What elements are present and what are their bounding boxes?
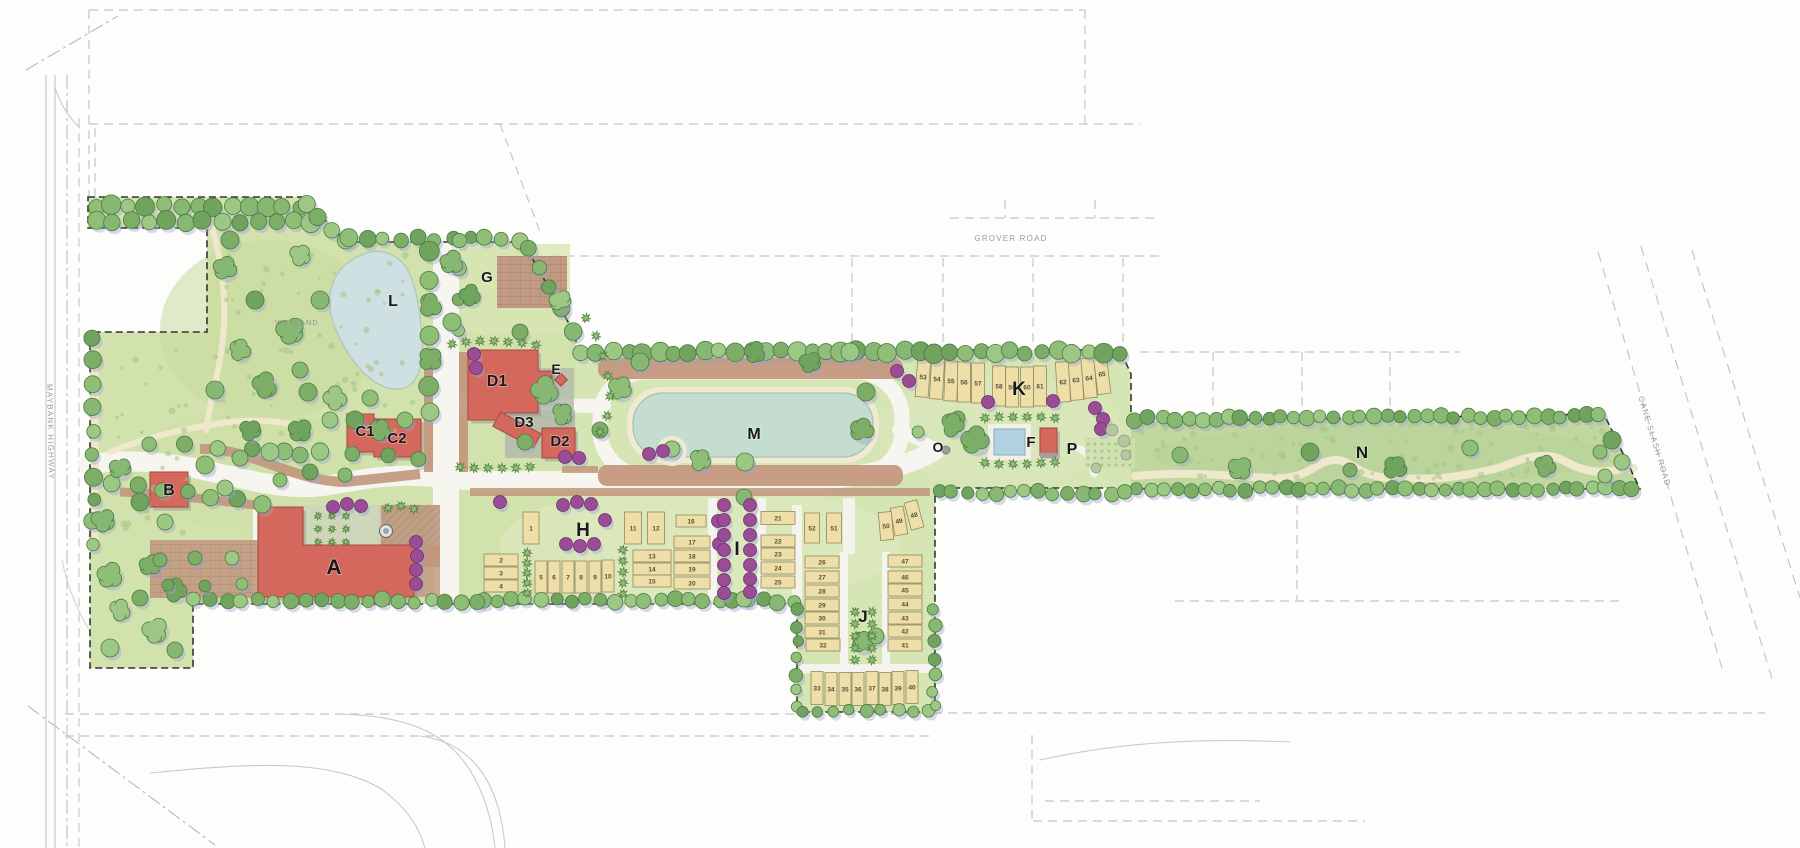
area-label-L: L [388, 293, 398, 310]
lot-6: 6 [548, 561, 560, 593]
lot-number: 32 [819, 642, 827, 649]
lot-number: 5 [539, 574, 543, 581]
lot-number: 11 [630, 525, 637, 532]
lot-34: 34 [825, 673, 837, 706]
wetland-label: WETLAND [275, 318, 319, 327]
area-label-E: E [551, 361, 560, 377]
lot-number: 7 [566, 574, 570, 581]
lot-24: 24 [761, 562, 795, 574]
lot-27: 27 [805, 571, 839, 583]
lot-number: 62 [1059, 379, 1067, 386]
lot-15: 15 [633, 575, 671, 587]
lot-number: 18 [688, 553, 696, 560]
lot-3: 3 [484, 567, 518, 579]
lot-number: 33 [813, 685, 821, 692]
lot-number: 41 [901, 642, 909, 649]
lot-17: 17 [674, 536, 710, 548]
lot-number: 21 [774, 515, 782, 522]
pool [988, 424, 1031, 460]
area-label-J: J [858, 607, 867, 626]
lot-11: 11 [625, 512, 642, 544]
lot-number: 44 [901, 601, 909, 608]
lot-number: 47 [901, 558, 909, 565]
lot-number: 26 [818, 559, 826, 566]
road-label-cane_slash: CANE SLASH ROAD [1636, 395, 1672, 488]
lot-57: 57 [972, 363, 985, 403]
area-label-I: I [734, 539, 739, 560]
lot-number: 13 [648, 553, 656, 560]
lot-number: 65 [1098, 371, 1106, 379]
road-label-grover: GROVER ROAD [974, 234, 1047, 243]
lot-2: 2 [484, 554, 518, 566]
lot-44: 44 [888, 598, 922, 610]
lot-number: 2 [499, 557, 503, 564]
lot-number: 3 [499, 570, 503, 577]
lot-19: 19 [674, 563, 710, 575]
lot-number: 42 [901, 628, 909, 635]
lot-31: 31 [805, 626, 839, 638]
lot-number: 12 [652, 525, 660, 532]
lot-4: 4 [484, 580, 518, 592]
lot-50: 50 [878, 511, 893, 540]
lot-number: 4 [499, 583, 503, 590]
lot-16: 16 [676, 515, 706, 527]
lot-38: 38 [879, 673, 891, 706]
lot-number: 10 [604, 573, 612, 580]
lot-number: 45 [901, 587, 909, 594]
lot-47: 47 [888, 555, 922, 567]
lot-number: 27 [818, 574, 826, 581]
lot-number: 50 [882, 523, 890, 531]
area-label-H: H [576, 520, 590, 541]
lot-56: 56 [958, 362, 971, 402]
lot-45: 45 [888, 584, 922, 596]
lot-number: 40 [908, 684, 916, 691]
lot-number: 37 [868, 685, 876, 692]
lot-41: 41 [888, 639, 922, 651]
lot-51: 51 [827, 513, 842, 543]
lot-22: 22 [761, 535, 795, 547]
lot-number: 54 [933, 376, 941, 383]
lot-14: 14 [633, 563, 671, 575]
lot-32: 32 [806, 639, 840, 651]
lot-number: 52 [808, 525, 816, 532]
lot-number: 35 [841, 686, 849, 693]
fountain [380, 525, 393, 538]
lot-number: 38 [881, 686, 889, 693]
lot-number: 55 [947, 378, 955, 385]
lot-number: 51 [830, 525, 838, 532]
lot-25: 25 [761, 576, 795, 588]
lot-46: 46 [888, 571, 922, 583]
lot-number: 14 [648, 566, 656, 573]
lot-number: 28 [818, 588, 826, 595]
area-label-D2: D2 [550, 433, 569, 450]
lot-number: 16 [687, 518, 695, 525]
lot-number: 19 [688, 566, 696, 573]
area-label-O: O [933, 439, 944, 455]
lot-13: 13 [633, 550, 671, 562]
lot-35: 35 [839, 673, 851, 706]
lot-number: 57 [974, 380, 982, 387]
lot-number: 39 [894, 685, 902, 692]
lot-number: 53 [919, 374, 927, 382]
lot-number: 46 [901, 574, 909, 581]
lot-number: 43 [901, 615, 909, 622]
lot-number: 24 [774, 565, 782, 572]
area-label-B: B [163, 482, 175, 499]
lot-number: 30 [818, 615, 826, 622]
lot-30: 30 [805, 612, 839, 624]
lot-number: 6 [552, 574, 556, 581]
lot-number: 15 [648, 578, 656, 585]
lot-number: 64 [1085, 375, 1093, 383]
area-label-D3: D3 [514, 414, 533, 431]
lot-number: 17 [688, 539, 696, 546]
lot-number: 20 [688, 580, 696, 587]
lot-number: 22 [774, 538, 782, 545]
lot-40: 40 [906, 671, 918, 704]
area-label-N: N [1356, 443, 1368, 462]
offsite-road-curves [150, 714, 1290, 848]
lot-9: 9 [589, 561, 601, 593]
area-label-D1: D1 [487, 373, 508, 390]
lot-number: 31 [818, 629, 826, 636]
lot-33: 33 [811, 672, 823, 705]
lot-37: 37 [866, 672, 878, 705]
area-label-A: A [326, 556, 341, 579]
lot-number: 1 [529, 525, 533, 532]
lot-42: 42 [888, 625, 922, 637]
area-label-C2: C2 [387, 430, 406, 447]
area-label-C1: C1 [355, 423, 374, 440]
master-site-plan: 1234567891011121314151617181920212223242… [0, 0, 1800, 848]
lot-39: 39 [892, 672, 904, 705]
lot-26: 26 [805, 556, 839, 568]
lot-5: 5 [535, 561, 547, 593]
road-label-maybank: MAYBANK HIGHWAY [45, 384, 56, 480]
site-plan-page: 1234567891011121314151617181920212223242… [0, 0, 1800, 848]
lot-18: 18 [674, 550, 710, 562]
lot-43: 43 [888, 612, 922, 624]
lot-number: 34 [827, 686, 835, 693]
area-label-G: G [481, 269, 493, 286]
building-f [1040, 428, 1057, 455]
lot-number: 8 [579, 574, 583, 581]
lot-61: 61 [1034, 366, 1047, 406]
lot-52: 52 [805, 513, 820, 543]
lot-number: 58 [995, 383, 1003, 390]
lot-20: 20 [674, 577, 710, 589]
lot-28: 28 [805, 585, 839, 597]
lot-8: 8 [575, 561, 587, 593]
lot-number: 56 [960, 379, 968, 386]
lot-29: 29 [805, 599, 839, 611]
lot-36: 36 [852, 673, 864, 706]
lot-10: 10 [602, 560, 614, 592]
lot-7: 7 [562, 561, 574, 593]
area-label-P: P [1067, 441, 1078, 458]
lot-number: 25 [774, 579, 782, 586]
area-label-M: M [747, 426, 760, 443]
area-label-K: K [1012, 379, 1026, 400]
lot-23: 23 [761, 548, 795, 560]
lot-12: 12 [648, 512, 665, 544]
lot-number: 9 [593, 574, 597, 581]
lot-number: 61 [1036, 383, 1044, 390]
lot-1: 1 [523, 512, 539, 544]
lot-21: 21 [761, 512, 795, 525]
lot-number: 63 [1072, 377, 1080, 385]
area-label-F: F [1026, 434, 1035, 451]
lot-55: 55 [944, 361, 958, 401]
lot-number: 29 [818, 602, 826, 609]
lot-number: 36 [854, 686, 862, 693]
lot-number: 23 [774, 551, 782, 558]
